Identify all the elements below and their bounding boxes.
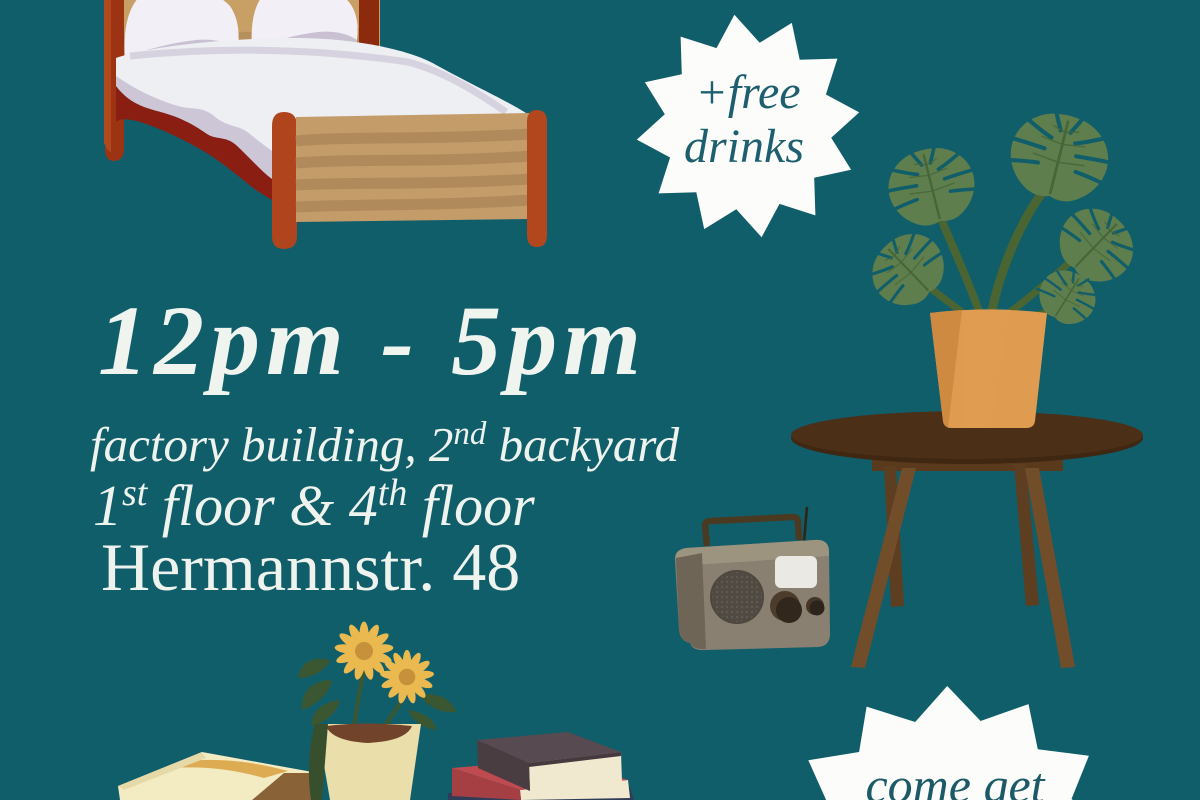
svg-text:factory building, 2nd backyard: factory building, 2nd backyard [90, 416, 680, 472]
svg-text:+free: +free [695, 66, 800, 119]
svg-text:come get: come get [865, 757, 1045, 800]
svg-text:Hermannstr. 48: Hermannstr. 48 [101, 529, 520, 605]
svg-text:drinks: drinks [684, 120, 804, 173]
svg-text:12pm - 5pm: 12pm - 5pm [98, 285, 647, 396]
